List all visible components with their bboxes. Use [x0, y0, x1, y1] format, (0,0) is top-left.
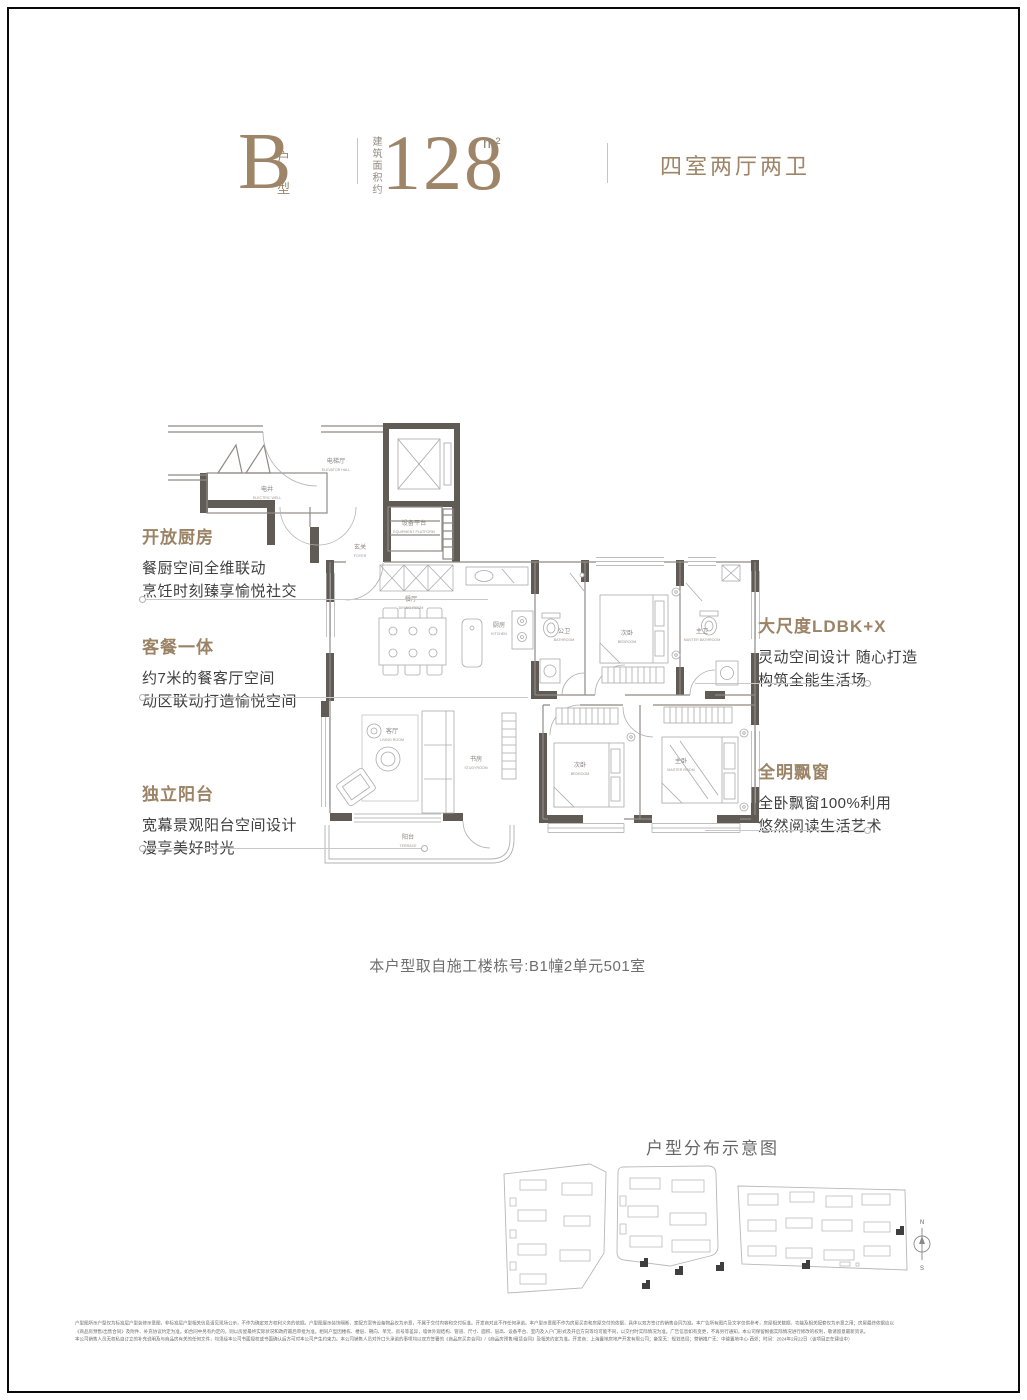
room-label-kitchen: 厨房	[493, 621, 505, 629]
siteplan-svg: N S	[490, 1158, 935, 1298]
floorplan: 电井 ELECTRIC WELL 电梯厅 ELEVATOR HALL 设备平台 …	[150, 415, 770, 880]
header-divider-1	[357, 138, 358, 184]
floorplan-svg: 电井 ELECTRIC WELL 电梯厅 ELEVATOR HALL 设备平台 …	[150, 415, 770, 880]
room-label-bathroom-en: BATHROOM	[554, 638, 575, 642]
leader-bay-window	[705, 830, 868, 831]
room-label-foyer: 玄关	[354, 543, 366, 551]
room-label-master-bathroom: 主卫	[696, 627, 708, 635]
room-label-bedroom-top: 次卧	[621, 629, 633, 637]
leader-dot	[421, 845, 428, 852]
room-label-bedroom-bottom-en: BEDROOM	[571, 772, 590, 776]
disclaimer: 户型图所示户型仅为标准层户型装修示意图，非标准层户型相关信息请见现场公示，不作为…	[75, 1320, 952, 1352]
room-label-master-bedroom: 主卧	[675, 757, 687, 765]
room-label-electric-well: 电井	[261, 485, 273, 493]
leader-dot	[864, 680, 871, 687]
elevator-shaft	[386, 426, 457, 504]
annotation-title: 全明飘窗	[758, 758, 988, 783]
leader-dot	[139, 845, 146, 852]
room-label-master-bathroom-en: MASTER BATHROOM	[684, 638, 720, 642]
plan-caption: 本户型取自施工楼栋号:B1幢2单元501室	[0, 955, 1015, 976]
disclaimer-line: 本公司销售人员无权私自订立的补充说明及与商品房有关的任何文件，均须经本公司书面授…	[75, 1336, 952, 1344]
compass: N S	[914, 1220, 930, 1272]
siteplan: N S	[490, 1158, 935, 1298]
annotation-line: 灵动空间设计 随心打造	[758, 646, 988, 669]
annotation-ldbk: 大尺度LDBK+X 灵动空间设计 随心打造 构筑全能生活场	[758, 612, 988, 692]
leader-open-kitchen	[142, 599, 488, 600]
siteplan-buildings	[510, 1178, 890, 1284]
unit-type-char-hu: 户	[277, 147, 290, 166]
room-label-terrace: 阳台	[402, 833, 414, 841]
foyer-cabinet	[380, 565, 453, 591]
leader-balcony	[142, 848, 425, 849]
room-label-bedroom-top-en: BEDROOM	[618, 640, 637, 644]
leader-dot	[139, 694, 146, 701]
room-label-master-bedroom-en: MASTER ROOM	[667, 768, 694, 772]
siteplan-highlight-markers	[640, 1226, 904, 1289]
room-label-electric-well-en: ELECTRIC WELL	[253, 496, 282, 500]
room-label-elevator-hall-en: ELEVATOR HALL	[322, 468, 351, 472]
annotation-bay-window: 全明飘窗 全卧飘窗100%利用 悠然阅读生活艺术	[758, 758, 988, 838]
area-unit: m²	[483, 135, 501, 152]
leader-dot	[864, 827, 871, 834]
compass-south-label: S	[920, 1266, 924, 1272]
header-divider-2	[607, 143, 608, 183]
room-label-dining-en: DINING ROOM	[399, 606, 424, 610]
room-label-study-en: STUDYROOM	[464, 766, 487, 770]
room-label-kitchen-en: KITCHEN	[491, 632, 507, 636]
annotation-line: 构筑全能生活场	[758, 669, 988, 692]
room-label-bedroom-bottom: 次卧	[574, 761, 586, 769]
leader-dining-living	[142, 697, 528, 698]
compass-north-label: N	[920, 1220, 924, 1226]
area-label: 建筑面积约	[368, 136, 383, 196]
room-label-elevator-hall: 电梯厅	[327, 457, 346, 465]
annotation-line: 悠然阅读生活艺术	[758, 815, 988, 838]
room-label-equipment-platform-en: EQUIPMENT PLATFORM	[393, 530, 435, 534]
room-label-living-en: LIVING ROOM	[380, 738, 404, 742]
terrace-outline	[325, 825, 514, 863]
room-label-study: 书房	[470, 755, 482, 763]
disclaimer-line: 户型图所示户型仅为标准层户型装修示意图，非标准层户型相关信息请见现场公示，不作为…	[75, 1320, 952, 1328]
room-label-bathroom: 公卫	[558, 628, 570, 635]
unit-type-suffix: 户 型	[277, 147, 290, 197]
annotation-line: 全卧飘窗100%利用	[758, 792, 988, 815]
room-label-living: 客厅	[386, 727, 398, 735]
room-label-equipment-platform: 设备平台	[402, 519, 427, 527]
unit-type-char-xing: 型	[277, 178, 290, 197]
disclaimer-line: 《商品房预售/出售合同》及附件、补充协议约定为准。如合同中另有约定的，则以房屋最…	[75, 1328, 952, 1336]
siteplan-title: 户型分布示意图	[490, 1134, 935, 1159]
leader-ldbk	[695, 683, 868, 684]
annotation-title: 大尺度LDBK+X	[758, 612, 988, 637]
leader-dot	[139, 596, 146, 603]
rooms-summary: 四室两厅两卫	[660, 149, 810, 181]
room-label-foyer-en: FOYER	[354, 554, 367, 558]
